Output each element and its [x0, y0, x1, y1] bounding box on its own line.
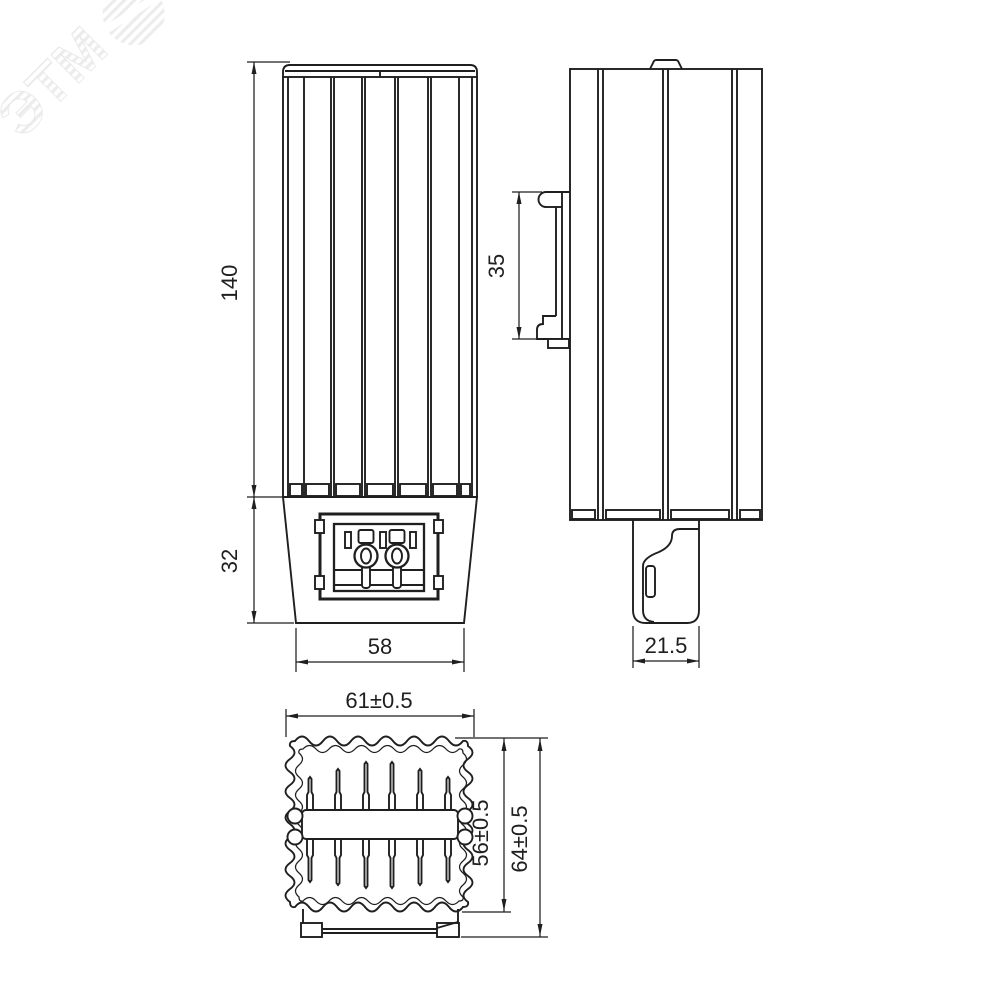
dimension-35: 35 — [484, 192, 542, 339]
connector-slot — [646, 566, 655, 597]
side-top-tab — [650, 60, 682, 69]
dimension-140: 140 — [217, 62, 290, 497]
technical-drawing: ЭТМ — [0, 0, 1000, 1000]
screw-clamp-left — [359, 530, 374, 543]
front-view: 140 32 58 — [217, 62, 477, 672]
din-rail-clip — [537, 192, 570, 348]
clip-foot — [548, 339, 569, 348]
drawing-canvas: ЭТМ — [0, 0, 1000, 1000]
side-connector — [633, 520, 699, 623]
front-body — [283, 77, 477, 497]
dim-label-fin-height: 56±0.5 — [468, 799, 493, 866]
dim-label-base-height: 32 — [217, 549, 242, 573]
section-fins-top — [307, 762, 451, 810]
dim-label-outer-width: 61±0.5 — [345, 688, 412, 713]
dimension-32: 32 — [217, 497, 294, 623]
dim-label-total-height: 64±0.5 — [507, 805, 532, 872]
front-fins — [288, 77, 472, 497]
front-fin-ends — [290, 484, 470, 496]
dim-label-din-rail: 35 — [484, 254, 509, 278]
bottom-section-view: 61±0.5 56±0.5 64±0.5 — [286, 688, 549, 937]
dim-label-clip-depth: 21.5 — [645, 633, 688, 658]
watermark-logo: ЭТМ — [0, 0, 182, 155]
dimension-56: 56±0.5 — [462, 738, 511, 912]
front-terminal-block — [315, 514, 443, 599]
section-mounting-bracket — [301, 909, 459, 937]
section-fins-bottom — [307, 839, 451, 888]
dimension-58: 58 — [296, 628, 464, 672]
dimension-21-5: 21.5 — [633, 626, 699, 668]
screw-clamp-right — [390, 530, 405, 543]
watermark-text: ЭТМ — [0, 15, 120, 149]
side-view: 35 21.5 — [484, 60, 762, 668]
dim-label-width: 58 — [368, 634, 392, 659]
dimension-61: 61±0.5 — [286, 688, 474, 737]
side-fins — [598, 69, 737, 520]
section-heater-channel — [302, 810, 458, 839]
dim-label-height: 140 — [217, 265, 242, 302]
